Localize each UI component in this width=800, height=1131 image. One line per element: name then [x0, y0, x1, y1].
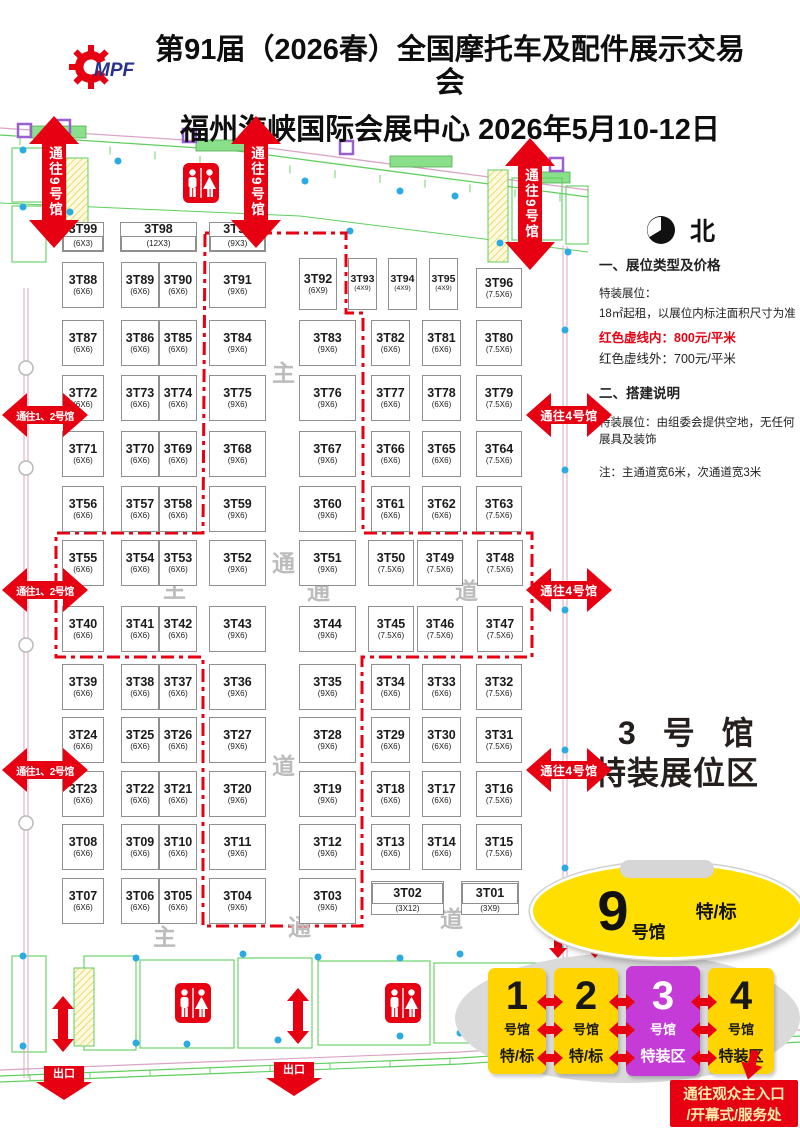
booth-3T03: 3T03(9X6): [299, 878, 356, 924]
booth-3T96: 3T96(7.5X6): [476, 268, 522, 308]
booth-3T01: 3T01(3X9): [461, 881, 519, 915]
info-note: 注：主通道宽6米，次通道宽3米: [599, 465, 799, 482]
booth-3T07: 3T07(6X6): [62, 878, 104, 924]
arrow-to-hall9: 通往9号馆: [231, 116, 281, 248]
info-price-outside: 红色虚线外：700元/平米: [599, 350, 799, 369]
booth-3T76: 3T76(9X6): [299, 375, 356, 421]
booth-3T93: 3T93(4X9): [348, 258, 377, 310]
hall-connector-arrow: [609, 994, 635, 1015]
hall-connector-arrow: [537, 994, 563, 1015]
booth-3T67: 3T67(9X6): [299, 431, 356, 477]
booth-3T15: 3T15(7.5X6): [476, 824, 522, 870]
booth-3T17: 3T17(6X6): [422, 771, 461, 817]
exit-arrow: 出口: [36, 1066, 92, 1100]
booth-3T41: 3T41(6X6): [121, 606, 159, 652]
booth-3T22: 3T22(6X6): [121, 771, 159, 817]
booth-3T60: 3T60(9X6): [299, 486, 356, 532]
passage-arrow: [287, 988, 309, 1044]
booth-3T31: 3T31(7.5X6): [476, 717, 522, 763]
booth-3T49: 3T49(7.5X6): [417, 540, 463, 586]
booth-3T57: 3T57(6X6): [121, 486, 159, 532]
passage-arrow: [52, 996, 74, 1052]
booth-3T48: 3T48(7.5X6): [477, 540, 523, 586]
booth-3T09: 3T09(6X6): [121, 824, 159, 870]
info-section1-title: 一、展位类型及价格: [599, 256, 799, 276]
booth-3T54: 3T54(6X6): [121, 540, 159, 586]
logo-text: MPF: [94, 60, 134, 82]
booth-3T28: 3T28(9X6): [299, 717, 356, 763]
booth-3T65: 3T65(6X6): [422, 431, 461, 477]
booth-3T94: 3T94(4X9): [388, 258, 417, 310]
booth-3T58: 3T58(6X6): [159, 486, 197, 532]
booth-3T73: 3T73(6X6): [121, 375, 159, 421]
arrow-to-hall9: 通往9号馆: [505, 138, 555, 270]
entrance-line1: 通往观众主入口: [670, 1085, 798, 1106]
booth-3T10: 3T10(6X6): [159, 824, 197, 870]
compass-icon: [646, 215, 676, 245]
booth-3T98: 3T98(12X3): [120, 222, 197, 252]
info-section2-title: 二、搭建说明: [599, 384, 799, 404]
booth-3T25: 3T25(6X6): [121, 717, 159, 763]
booth-3T50: 3T50(7.5X6): [368, 540, 414, 586]
booth-3T04: 3T04(9X6): [209, 878, 266, 924]
booth-3T11: 3T11(9X6): [209, 824, 266, 870]
hall9-number: 9: [597, 883, 628, 939]
booth-3T69: 3T69(6X6): [159, 431, 197, 477]
info-line1: 特装展位：: [599, 286, 799, 303]
booth-3T68: 3T68(9X6): [209, 431, 266, 477]
booth-3T33: 3T33(6X6): [422, 664, 461, 710]
booth-3T91: 3T91(9X6): [209, 262, 266, 308]
booth-3T13: 3T13(6X6): [371, 824, 410, 870]
info-line5: 特装展位：由组委会提供空地，无任何展具及装饰: [599, 415, 799, 450]
exit-arrow: 出口: [266, 1062, 322, 1096]
hall-connector-arrow: [609, 1050, 635, 1071]
booth-3T87: 3T87(6X6): [62, 320, 104, 366]
booth-3T82: 3T82(6X6): [371, 320, 410, 366]
arrow-to-hall1-2: 通往1、2号馆: [2, 748, 88, 792]
booth-3T70: 3T70(6X6): [121, 431, 159, 477]
entrance-line2: /开幕式/服务处: [670, 1106, 798, 1127]
booth-3T35: 3T35(9X6): [299, 664, 356, 710]
arrow-to-hall1-2: 通往1、2号馆: [2, 568, 88, 612]
booth-3T92: 3T92(6X9): [299, 258, 337, 310]
booth-3T40: 3T40(6X6): [62, 606, 104, 652]
booth-3T46: 3T46(7.5X6): [417, 606, 463, 652]
arrow-to-hall4: 通往4号馆: [526, 748, 612, 792]
booth-3T34: 3T34(6X6): [371, 664, 410, 710]
toilet-icon: [183, 163, 219, 208]
arrow-to-hall9: 通往9号馆: [29, 116, 79, 248]
aisle-label: 主: [272, 362, 295, 385]
booth-3T90: 3T90(6X6): [159, 262, 197, 308]
booth-3T08: 3T08(6X6): [62, 824, 104, 870]
booth-3T83: 3T83(9X6): [299, 320, 356, 366]
booth-3T81: 3T81(6X6): [422, 320, 461, 366]
toilet-icon: [175, 983, 211, 1028]
booth-3T26: 3T26(6X6): [159, 717, 197, 763]
booth-3T66: 3T66(6X6): [371, 431, 410, 477]
booth-3T56: 3T56(6X6): [62, 486, 104, 532]
hall-connector-arrow: [609, 1022, 635, 1043]
hall-connector-arrow: [691, 1022, 717, 1043]
booth-3T44: 3T44(9X6): [299, 606, 356, 652]
booth-3T19: 3T19(9X6): [299, 771, 356, 817]
hall9-ellipse: 9 号馆 特/标: [530, 862, 800, 960]
booth-3T30: 3T30(6X6): [422, 717, 461, 763]
hall-connector-arrow: [691, 1050, 717, 1071]
booth-3T75: 3T75(9X6): [209, 375, 266, 421]
booth-3T71: 3T71(6X6): [62, 431, 104, 477]
zone-label-line2: 特装展位区: [594, 756, 800, 791]
hall9-tag: 特/标: [696, 898, 737, 924]
booth-3T42: 3T42(6X6): [159, 606, 197, 652]
booth-3T52: 3T52(9X6): [209, 540, 266, 586]
cmpf-logo: MPF: [68, 44, 154, 96]
hall3-box: 3号馆特装区: [626, 966, 700, 1076]
booth-3T06: 3T06(6X6): [121, 878, 159, 924]
booth-3T78: 3T78(6X6): [422, 375, 461, 421]
booth-3T84: 3T84(9X6): [209, 320, 266, 366]
aisle-label: 主: [153, 926, 176, 949]
booth-3T77: 3T77(6X6): [371, 375, 410, 421]
hall9-suffix: 号馆: [632, 918, 666, 943]
booth-3T02: 3T02(3X12): [371, 881, 444, 915]
booth-3T89: 3T89(6X6): [121, 262, 159, 308]
entrance-label: 通往观众主入口 /开幕式/服务处: [670, 1080, 798, 1127]
arrow-to-hall1-2: 通往1、2号馆: [2, 393, 88, 437]
zone-label-line1: 3 号 馆: [594, 716, 800, 751]
booth-3T80: 3T80(7.5X6): [476, 320, 522, 366]
booth-3T62: 3T62(6X6): [422, 486, 461, 532]
booth-3T47: 3T47(7.5X6): [477, 606, 523, 652]
booth-3T43: 3T43(9X6): [209, 606, 266, 652]
arrow-to-hall4: 通往4号馆: [526, 393, 612, 437]
booth-3T59: 3T59(9X6): [209, 486, 266, 532]
booth-3T18: 3T18(6X6): [371, 771, 410, 817]
info-panel: 一、展位类型及价格 特装展位： 18㎡起租，以展位内标注面积尺寸为准 红色虚线内…: [599, 256, 799, 482]
booth-3T21: 3T21(6X6): [159, 771, 197, 817]
aisle-label: 道: [272, 755, 295, 778]
arrow-to-hall4: 通往4号馆: [526, 568, 612, 612]
booth-3T51: 3T51(9X6): [299, 540, 356, 586]
booth-3T74: 3T74(6X6): [159, 375, 197, 421]
booth-3T63: 3T63(7.5X6): [476, 486, 522, 532]
north-indicator: 北: [646, 212, 715, 248]
booth-3T53: 3T53(6X6): [159, 540, 197, 586]
hall-connector-arrow: [691, 994, 717, 1015]
hall3-zone-label: 3 号 馆 特装展位区: [594, 716, 800, 791]
north-label: 北: [690, 212, 715, 248]
booth-3T32: 3T32(7.5X6): [476, 664, 522, 710]
booth-3T12: 3T12(9X6): [299, 824, 356, 870]
hall-connector-arrow: [537, 1050, 563, 1071]
booth-3T61: 3T61(6X6): [371, 486, 410, 532]
booth-3T95: 3T95(4X9): [429, 258, 458, 310]
booth-3T20: 3T20(9X6): [209, 771, 266, 817]
title-line1: 第91届（2026春）全国摩托车及配件展示交易会: [148, 34, 752, 101]
booth-3T27: 3T27(9X6): [209, 717, 266, 763]
aisle-label: 通: [272, 552, 295, 575]
booth-3T86: 3T86(6X6): [121, 320, 159, 366]
booth-3T45: 3T45(7.5X6): [368, 606, 414, 652]
booth-3T37: 3T37(6X6): [159, 664, 197, 710]
exhibition-floor-plan: MPF 第91届（2026春）全国摩托车及配件展示交易会 福州海峡国际会展中心 …: [0, 0, 800, 1131]
booth-3T88: 3T88(6X6): [62, 262, 104, 308]
booth-3T38: 3T38(6X6): [121, 664, 159, 710]
hall9-notch: [620, 860, 714, 878]
booth-3T64: 3T64(7.5X6): [476, 431, 522, 477]
toilet-icon: [385, 983, 421, 1028]
booth-3T85: 3T85(6X6): [159, 320, 197, 366]
info-line2: 18㎡起租，以展位内标注面积尺寸为准: [599, 306, 799, 323]
booth-3T79: 3T79(7.5X6): [476, 375, 522, 421]
hall-connector-arrow: [537, 1022, 563, 1043]
booth-3T16: 3T16(7.5X6): [476, 771, 522, 817]
booth-3T36: 3T36(9X6): [209, 664, 266, 710]
info-price-inside: 红色虚线内：800元/平米: [599, 329, 799, 348]
booth-3T14: 3T14(6X6): [422, 824, 461, 870]
booth-3T29: 3T29(6X6): [371, 717, 410, 763]
booth-3T39: 3T39(6X6): [62, 664, 104, 710]
booth-3T05: 3T05(6X6): [159, 878, 197, 924]
